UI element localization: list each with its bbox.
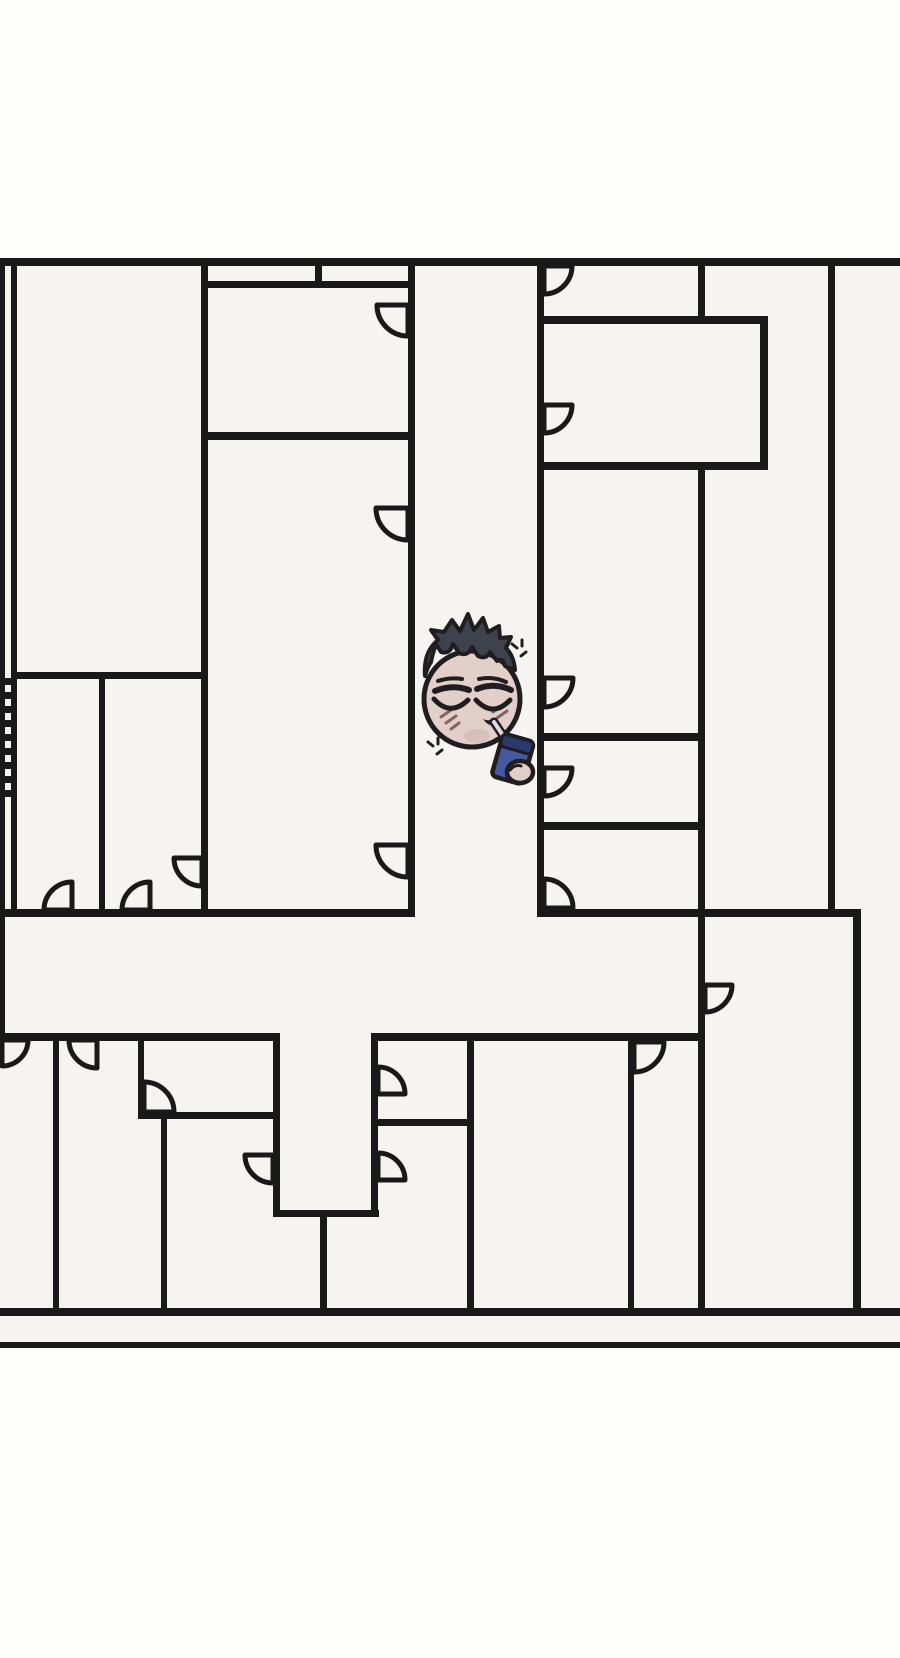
wall-segment (828, 262, 835, 917)
wall-segment (537, 822, 705, 830)
wall-segment (0, 258, 5, 1042)
wall-segment (0, 1342, 900, 1348)
wall-segment (537, 316, 768, 324)
wall-segment (99, 675, 105, 917)
wall-segment (205, 432, 415, 440)
wall-segment (205, 281, 410, 288)
wall-segment (11, 672, 207, 679)
wall-segment (0, 1308, 900, 1316)
wall-segment (161, 1119, 167, 1312)
wall-segment (467, 1036, 474, 1312)
wall-segment (201, 258, 208, 917)
wall-segment (273, 1036, 280, 1217)
wall-segment (537, 262, 544, 917)
wall-segment (537, 733, 705, 741)
wall-segment (853, 912, 861, 1316)
wall-segment (371, 1036, 378, 1217)
wall-segment (53, 1036, 59, 1312)
wall-segment (315, 262, 322, 288)
wall-segment (698, 262, 705, 322)
wall-segment (760, 316, 768, 470)
wall-segment (408, 262, 415, 917)
wall-segment (537, 462, 768, 470)
wall-segment (698, 466, 705, 1316)
game-scene (0, 0, 900, 1658)
wall-segment (371, 1119, 474, 1126)
hand (507, 761, 533, 783)
wall-segment (628, 1036, 634, 1312)
wall-segment (0, 258, 900, 266)
chin-stubble-shade (464, 729, 490, 743)
floor-plan-canvas[interactable] (0, 0, 900, 1658)
wall-segment (11, 258, 17, 917)
wall-segment (320, 1213, 327, 1312)
